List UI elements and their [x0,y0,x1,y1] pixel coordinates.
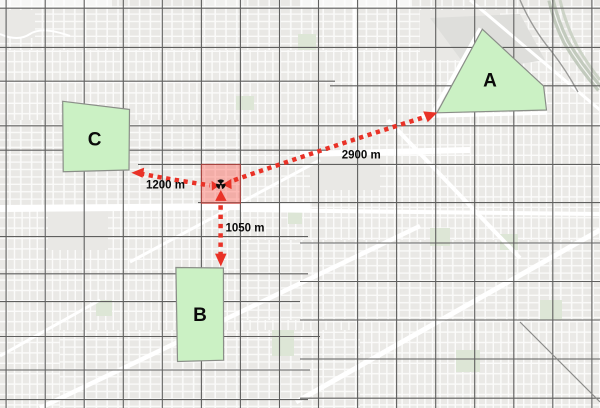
svg-text:B: B [193,305,207,326]
svg-text:1050 m: 1050 m [226,223,265,235]
svg-text:1200 m: 1200 m [146,179,185,191]
svg-text:C: C [88,129,102,150]
svg-text:A: A [483,71,497,92]
svg-text:2900 m: 2900 m [342,149,381,161]
